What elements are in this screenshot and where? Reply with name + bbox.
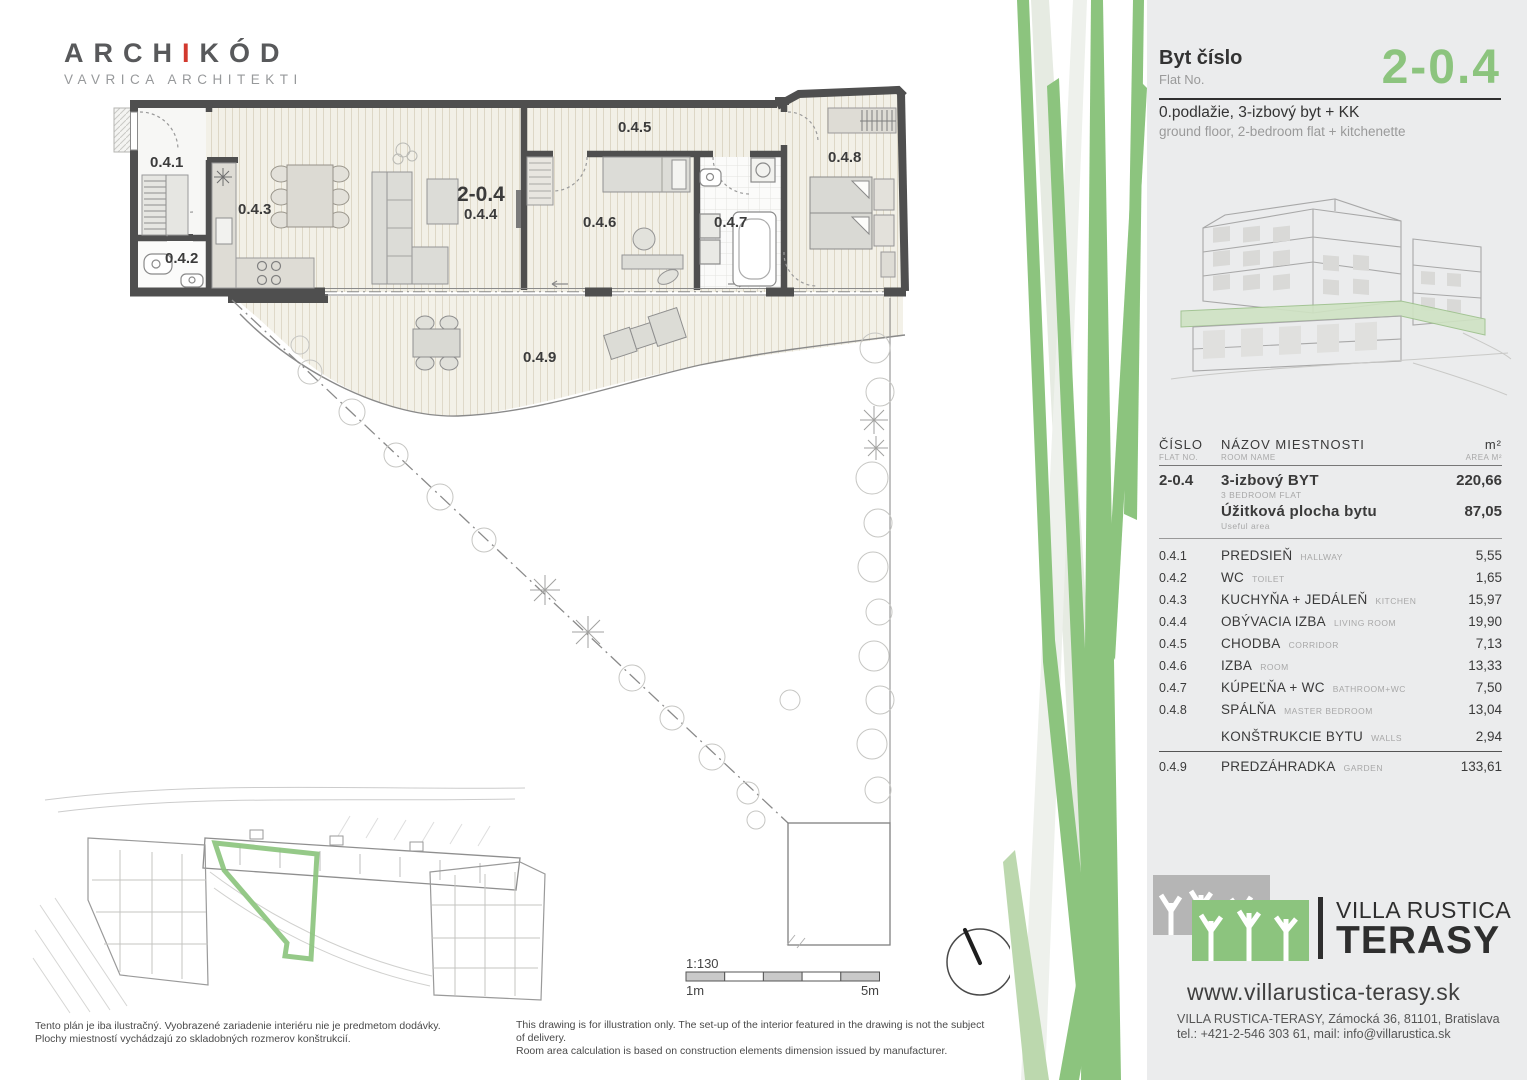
table-row: 0.4.4 OBÝVACIA IZBALIVING ROOM 19,90: [1159, 613, 1502, 631]
col-area-sk: m²: [1466, 437, 1502, 452]
contact-line: tel.: +421-2-546 303 61, mail: info@vill…: [1177, 1027, 1500, 1042]
website-url: www.villarustica-terasy.sk: [1187, 979, 1460, 1006]
tv-icon: [516, 190, 521, 228]
brand-line1: VILLA RUSTICA: [1336, 898, 1511, 922]
north-compass-icon: [947, 929, 1010, 995]
table-row: 0.4.7 KÚPEĽŇA + WCBATHROOM+WC 7,50: [1159, 679, 1502, 697]
col-name-en: ROOM NAME: [1221, 453, 1466, 462]
room-label-0-4-3: 0.4.3: [238, 201, 271, 218]
scale-min: 1m: [686, 983, 704, 998]
table-row: 0.4.6 IZBAROOM 13,33: [1159, 657, 1502, 675]
flat-label-sk: Byt číslo: [1159, 47, 1242, 70]
scale-max: 5m: [861, 983, 879, 998]
areas-table-header: ČÍSLO FLAT NO. NÁZOV MIESTNOSTI ROOM NAM…: [1159, 437, 1502, 466]
building-sketch: [1163, 183, 1513, 401]
col-area-en: AREA M²: [1466, 453, 1502, 462]
garden-row: 0.4.9 PREDZÁHRADKAGARDEN 133,61: [1159, 758, 1502, 776]
door-leaf: [775, 97, 789, 105]
floor-desc-sk: 0.podlažie, 3-izbový byt + KK: [1159, 104, 1359, 122]
room-label-0-4-4: 0.4.4: [464, 206, 498, 223]
col-number-en: FLAT NO.: [1159, 453, 1221, 462]
flat-total-row: 2-0.4 3-izbový BYT 220,66: [1159, 472, 1502, 489]
address-line: VILLA RUSTICA-TERASY, Zámocká 36, 81101,…: [1177, 1012, 1500, 1027]
room-label-0-4-6: 0.4.6: [583, 214, 616, 231]
flat-total-id: 2-0.4: [1159, 472, 1221, 489]
col-name-sk: NÁZOV MIESTNOSTI: [1221, 437, 1466, 452]
stairs: [142, 175, 188, 235]
disclaimer-slovak: Tento plán je iba ilustračný. Vyobrazené…: [35, 1020, 465, 1046]
entrance-porch: [114, 108, 131, 152]
useful-area-name: Úžitková plocha bytu: [1221, 503, 1464, 520]
flat-highlight-outline: [215, 843, 317, 959]
terrace-step: [228, 294, 328, 303]
floor-plan-brochure-page: { "branding": { "architect_name_pre": "A…: [0, 0, 1527, 1080]
col-number-sk: ČÍSLO: [1159, 437, 1221, 452]
flat-total-sub: 3 BEDROOM FLAT: [1159, 489, 1502, 503]
flat-number-label: 2-0.4: [457, 183, 505, 206]
disclaimer-sk-line2: Plochy miestností vychádzajú zo skladobn…: [35, 1033, 465, 1046]
floor-desc-en: ground floor, 2-bedroom flat + kitchenet…: [1159, 124, 1406, 139]
room-label-0-4-2: 0.4.2: [165, 250, 198, 267]
useful-area-row: Úžitková plocha bytu 87,05: [1159, 503, 1502, 520]
room-label-0-4-8: 0.4.8: [828, 149, 861, 166]
scale-ratio: 1:130: [686, 956, 719, 971]
useful-area-value: 87,05: [1464, 503, 1502, 520]
useful-area-name-en: Useful area: [1221, 521, 1502, 531]
table-row: 0.4.1 PREDSIEŇHALLWAY 5,55: [1159, 547, 1502, 565]
table-row: 0.4.3 KUCHYŇA + JEDÁLEŇKITCHEN 15,97: [1159, 591, 1502, 609]
entry-door: [131, 112, 138, 150]
info-panel: Byt číslo Flat No. 2-0.4 0.podlažie, 3-i…: [1147, 0, 1527, 1080]
room-label-0-4-7: 0.4.7: [714, 214, 747, 231]
villa-rustica-wordmark: VILLA RUSTICA TERASY: [1318, 897, 1511, 959]
room-label-0-4-9: 0.4.9: [523, 349, 556, 366]
table-divider: [1159, 538, 1502, 539]
flat-total-name-en: 3 BEDROOM FLAT: [1221, 490, 1502, 500]
room-label-0-4-1: 0.4.1: [150, 154, 183, 171]
room-label-0-4-5: 0.4.5: [618, 119, 651, 136]
disclaimer-sk-line1: Tento plán je iba ilustračný. Vyobrazené…: [35, 1020, 465, 1033]
useful-area-sub: Useful area: [1159, 520, 1502, 534]
villa-rustica-logo-icon: [1153, 873, 1325, 968]
floor-plan-drawing: 0.4.1 0.4.2 0.4.3 2-0.4 0.4.4 0.4.5 0.4.…: [0, 0, 1010, 1080]
walls-row: KONŠTRUKCIE BYTUWALLS 2,94: [1159, 728, 1502, 752]
disclaimer-en-line2: Room area calculation is based on constr…: [516, 1045, 986, 1058]
flat-total-area: 220,66: [1456, 472, 1502, 489]
table-row: 0.4.8 SPÁLŇAMASTER BEDROOM 13,04: [1159, 701, 1502, 719]
scale-bar: 1:130 1m 5m: [686, 956, 880, 998]
flat-total-name: 3-izbový BYT: [1221, 472, 1456, 489]
tree-branch-graphic: [1003, 0, 1148, 1080]
disclaimer-english: This drawing is for illustration only. T…: [516, 1019, 986, 1058]
table-row: 0.4.5 CHODBACORRIDOR 7,13: [1159, 635, 1502, 653]
site-overview-plan: [33, 787, 545, 1013]
disclaimer-en-line1: This drawing is for illustration only. T…: [516, 1019, 986, 1045]
areas-table: ČÍSLO FLAT NO. NÁZOV MIESTNOSTI ROOM NAM…: [1159, 437, 1502, 776]
trees: [291, 333, 894, 829]
dining-set: [271, 165, 349, 228]
table-row: 0.4.2 WCTOILET 1,65: [1159, 569, 1502, 587]
header-divider: [1159, 98, 1501, 100]
brand-line2: TERASY: [1336, 922, 1511, 959]
flat-number: 2-0.4: [1382, 40, 1501, 95]
flat-label-en: Flat No.: [1159, 72, 1205, 87]
garden-terrace: [232, 296, 905, 416]
company-address: VILLA RUSTICA-TERASY, Zámocká 36, 81101,…: [1177, 1012, 1500, 1042]
